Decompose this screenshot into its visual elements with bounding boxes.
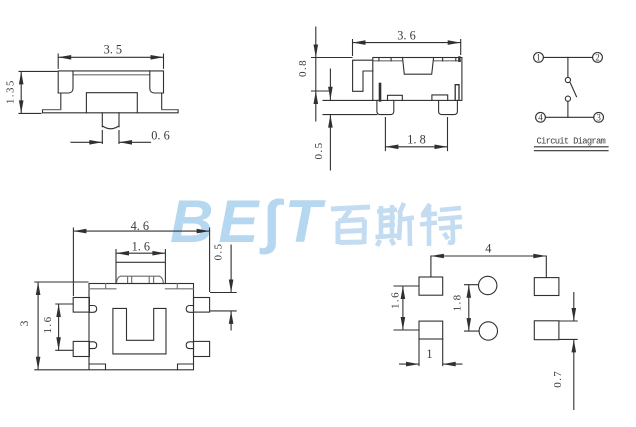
svg-text:BE∫T: BE∫T — [170, 188, 326, 255]
svg-text:4: 4 — [538, 113, 543, 123]
svg-text:3. 6: 3. 6 — [397, 29, 415, 43]
svg-text:1. 8: 1. 8 — [407, 132, 425, 146]
svg-text:1.8: 1.8 — [451, 293, 463, 311]
svg-text:0.5: 0.5 — [212, 243, 224, 261]
svg-text:1: 1 — [426, 347, 432, 361]
svg-text:0.5: 0.5 — [313, 142, 325, 160]
svg-text:0.8: 0.8 — [297, 59, 309, 77]
svg-text:3: 3 — [19, 320, 31, 326]
svg-text:1.6: 1.6 — [390, 291, 402, 309]
svg-text:0. 6: 0. 6 — [151, 129, 169, 143]
svg-text:1: 1 — [536, 53, 541, 63]
svg-text:Circuit Diagram: Circuit Diagram — [536, 137, 605, 147]
svg-text:1. 6: 1. 6 — [132, 240, 150, 254]
svg-text:4: 4 — [485, 242, 491, 256]
svg-text:1.6: 1.6 — [42, 316, 54, 334]
svg-text:0.7: 0.7 — [552, 370, 564, 388]
svg-text:3: 3 — [596, 113, 601, 123]
svg-text:1.35: 1.35 — [6, 79, 17, 104]
svg-text:2: 2 — [595, 53, 600, 63]
svg-text:3. 5: 3. 5 — [104, 42, 122, 56]
